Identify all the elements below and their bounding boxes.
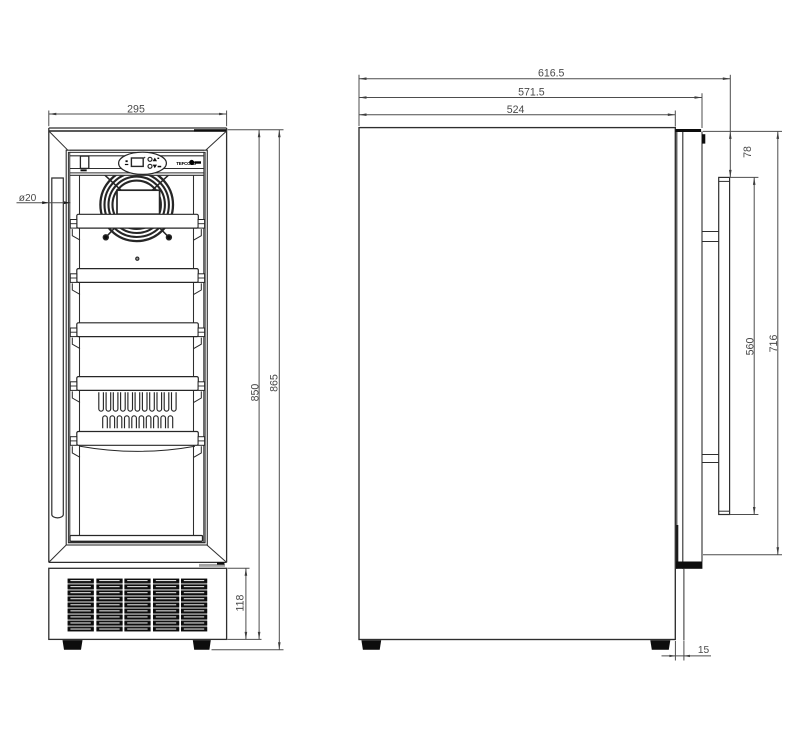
svg-text:616.5: 616.5 <box>538 67 565 79</box>
svg-text:ø20: ø20 <box>19 193 37 204</box>
svg-text:118: 118 <box>235 594 247 611</box>
svg-text:78: 78 <box>742 146 754 158</box>
svg-text:295: 295 <box>127 104 145 116</box>
svg-text:571.5: 571.5 <box>518 86 545 98</box>
svg-text:524: 524 <box>507 104 525 116</box>
svg-text:716: 716 <box>768 335 780 353</box>
svg-text:865: 865 <box>269 374 281 392</box>
svg-text:15: 15 <box>698 645 710 656</box>
svg-text:560: 560 <box>745 338 757 356</box>
svg-text:850: 850 <box>249 384 261 402</box>
